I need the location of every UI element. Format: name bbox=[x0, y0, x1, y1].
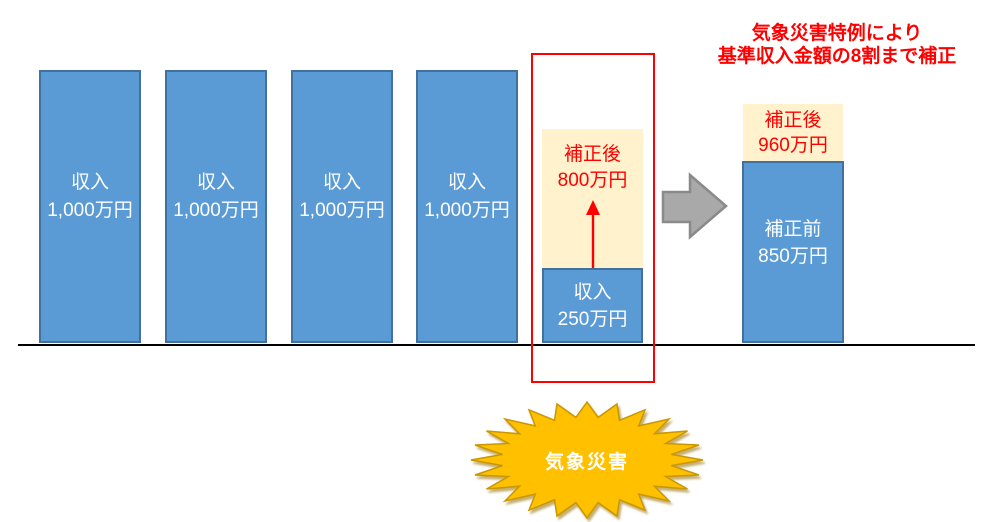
after-correction-box: 補正後 960万円 bbox=[743, 104, 843, 161]
bar-label-line: 1,000万円 bbox=[424, 197, 510, 225]
income-bar-label: 収入 1,000万円 bbox=[47, 169, 133, 245]
income-bar-year2: 収入 1,000万円 bbox=[165, 70, 267, 343]
bar-label-line: 収入 bbox=[424, 169, 510, 197]
disaster-income-label: 収入 250万円 bbox=[558, 279, 628, 333]
corrected-label-line: 960万円 bbox=[758, 133, 828, 158]
corrected-label-line: 補正後 bbox=[558, 142, 628, 168]
baseline-axis bbox=[18, 344, 975, 346]
corrected-label-line: 800万円 bbox=[558, 168, 628, 194]
disaster-income-bar: 収入 250万円 bbox=[542, 268, 643, 343]
bar-label-line: 1,000万円 bbox=[299, 197, 385, 225]
before-correction-bar: 補正前 850万円 bbox=[742, 161, 844, 343]
bar-label-line: 収入 bbox=[299, 169, 385, 197]
bar-label-line: 収入 bbox=[173, 169, 259, 197]
right-block-arrow-icon bbox=[661, 172, 729, 240]
special-rule-annotation: 気象災害特例により 基準収入金額の8割まで補正 bbox=[677, 22, 997, 68]
bar-label-line: 補正前 bbox=[758, 216, 828, 243]
bar-label-line: 収入 bbox=[558, 279, 628, 306]
bar-label-line: 250万円 bbox=[558, 306, 628, 333]
correction-up-arrow-icon bbox=[580, 198, 606, 270]
bar-label-line: 収入 bbox=[47, 169, 133, 197]
income-bar-label: 収入 1,000万円 bbox=[173, 169, 259, 245]
annotation-line: 基準収入金額の8割まで補正 bbox=[677, 45, 997, 68]
bar-label-line: 1,000万円 bbox=[47, 197, 133, 225]
corrected-label-line: 補正後 bbox=[758, 108, 828, 133]
annotation-line: 気象災害特例により bbox=[677, 22, 997, 45]
after-correction-label: 補正後 960万円 bbox=[758, 108, 828, 158]
income-bar-label: 収入 1,000万円 bbox=[424, 169, 510, 245]
income-bar-year1: 収入 1,000万円 bbox=[39, 70, 141, 343]
income-bar-year4: 収入 1,000万円 bbox=[416, 70, 518, 343]
before-correction-label: 補正前 850万円 bbox=[758, 216, 828, 288]
bar-label-line: 1,000万円 bbox=[173, 197, 259, 225]
income-bar-year3: 収入 1,000万円 bbox=[291, 70, 393, 343]
income-bar-label: 収入 1,000万円 bbox=[299, 169, 385, 245]
diagram-canvas: 収入 1,000万円 収入 1,000万円 収入 1,000万円 収入 1,00… bbox=[0, 0, 997, 522]
bar-label-line: 850万円 bbox=[758, 243, 828, 270]
starburst-label: 気象災害 bbox=[467, 398, 707, 522]
weather-disaster-starburst: 気象災害 bbox=[467, 398, 707, 522]
